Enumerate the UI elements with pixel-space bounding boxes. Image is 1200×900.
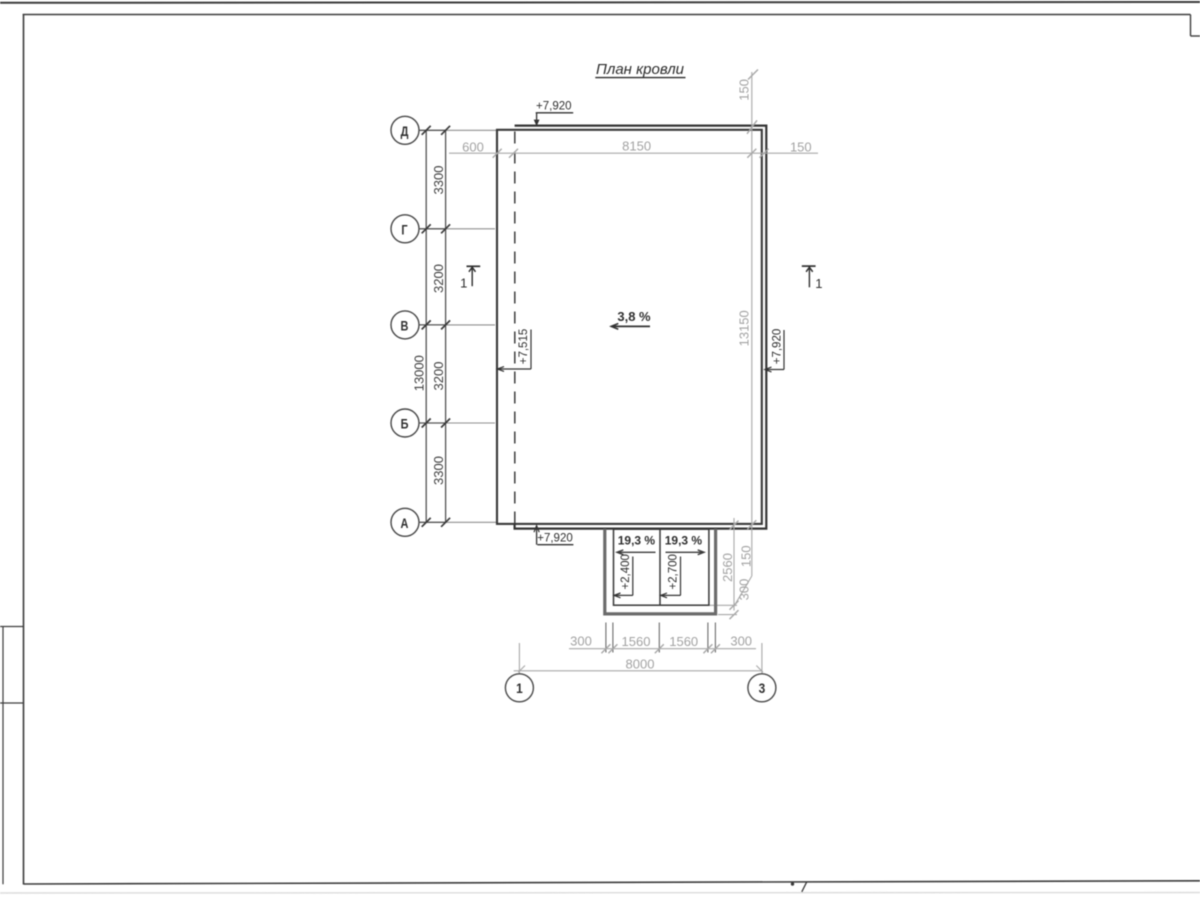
svg-text:3200: 3200 [431,264,446,293]
svg-text:3300: 3300 [431,166,446,195]
svg-text:300: 300 [730,634,752,649]
svg-text:300: 300 [570,634,592,649]
svg-text:19,3 %: 19,3 % [618,534,656,548]
svg-text:1: 1 [516,680,523,696]
svg-text:План кровли: План кровли [596,61,685,78]
svg-text:+7,920: +7,920 [536,100,572,112]
svg-text:8000: 8000 [626,657,655,672]
svg-text:+7,920: +7,920 [537,532,573,544]
svg-text:13150: 13150 [737,310,752,346]
svg-text:150: 150 [738,545,753,567]
svg-text:150: 150 [737,79,752,101]
svg-text:8150: 8150 [622,139,651,154]
svg-text:3200: 3200 [431,362,446,391]
svg-text:1560: 1560 [669,634,698,649]
svg-text:3300: 3300 [431,456,446,485]
svg-text:+2,400: +2,400 [620,554,632,590]
svg-text:Б: Б [401,416,409,432]
svg-text:600: 600 [462,140,484,155]
svg-text:В: В [401,318,409,334]
svg-text:150: 150 [790,140,812,155]
svg-text:+2,700: +2,700 [668,554,680,590]
svg-text:3: 3 [759,680,766,696]
svg-text:2560: 2560 [720,553,735,582]
svg-text:А: А [401,516,409,532]
svg-text:Г: Г [401,222,407,238]
svg-text:13000: 13000 [411,355,426,391]
svg-text:1: 1 [815,276,822,291]
svg-text:1560: 1560 [622,634,651,649]
svg-text:1: 1 [460,276,467,291]
svg-text:+7,515: +7,515 [518,329,530,365]
svg-text:+7,920: +7,920 [772,329,784,365]
svg-text:19,3 %: 19,3 % [665,534,703,548]
svg-text:3,8 %: 3,8 % [617,309,651,324]
svg-text:300: 300 [737,579,752,601]
svg-text:Д: Д [401,124,409,140]
